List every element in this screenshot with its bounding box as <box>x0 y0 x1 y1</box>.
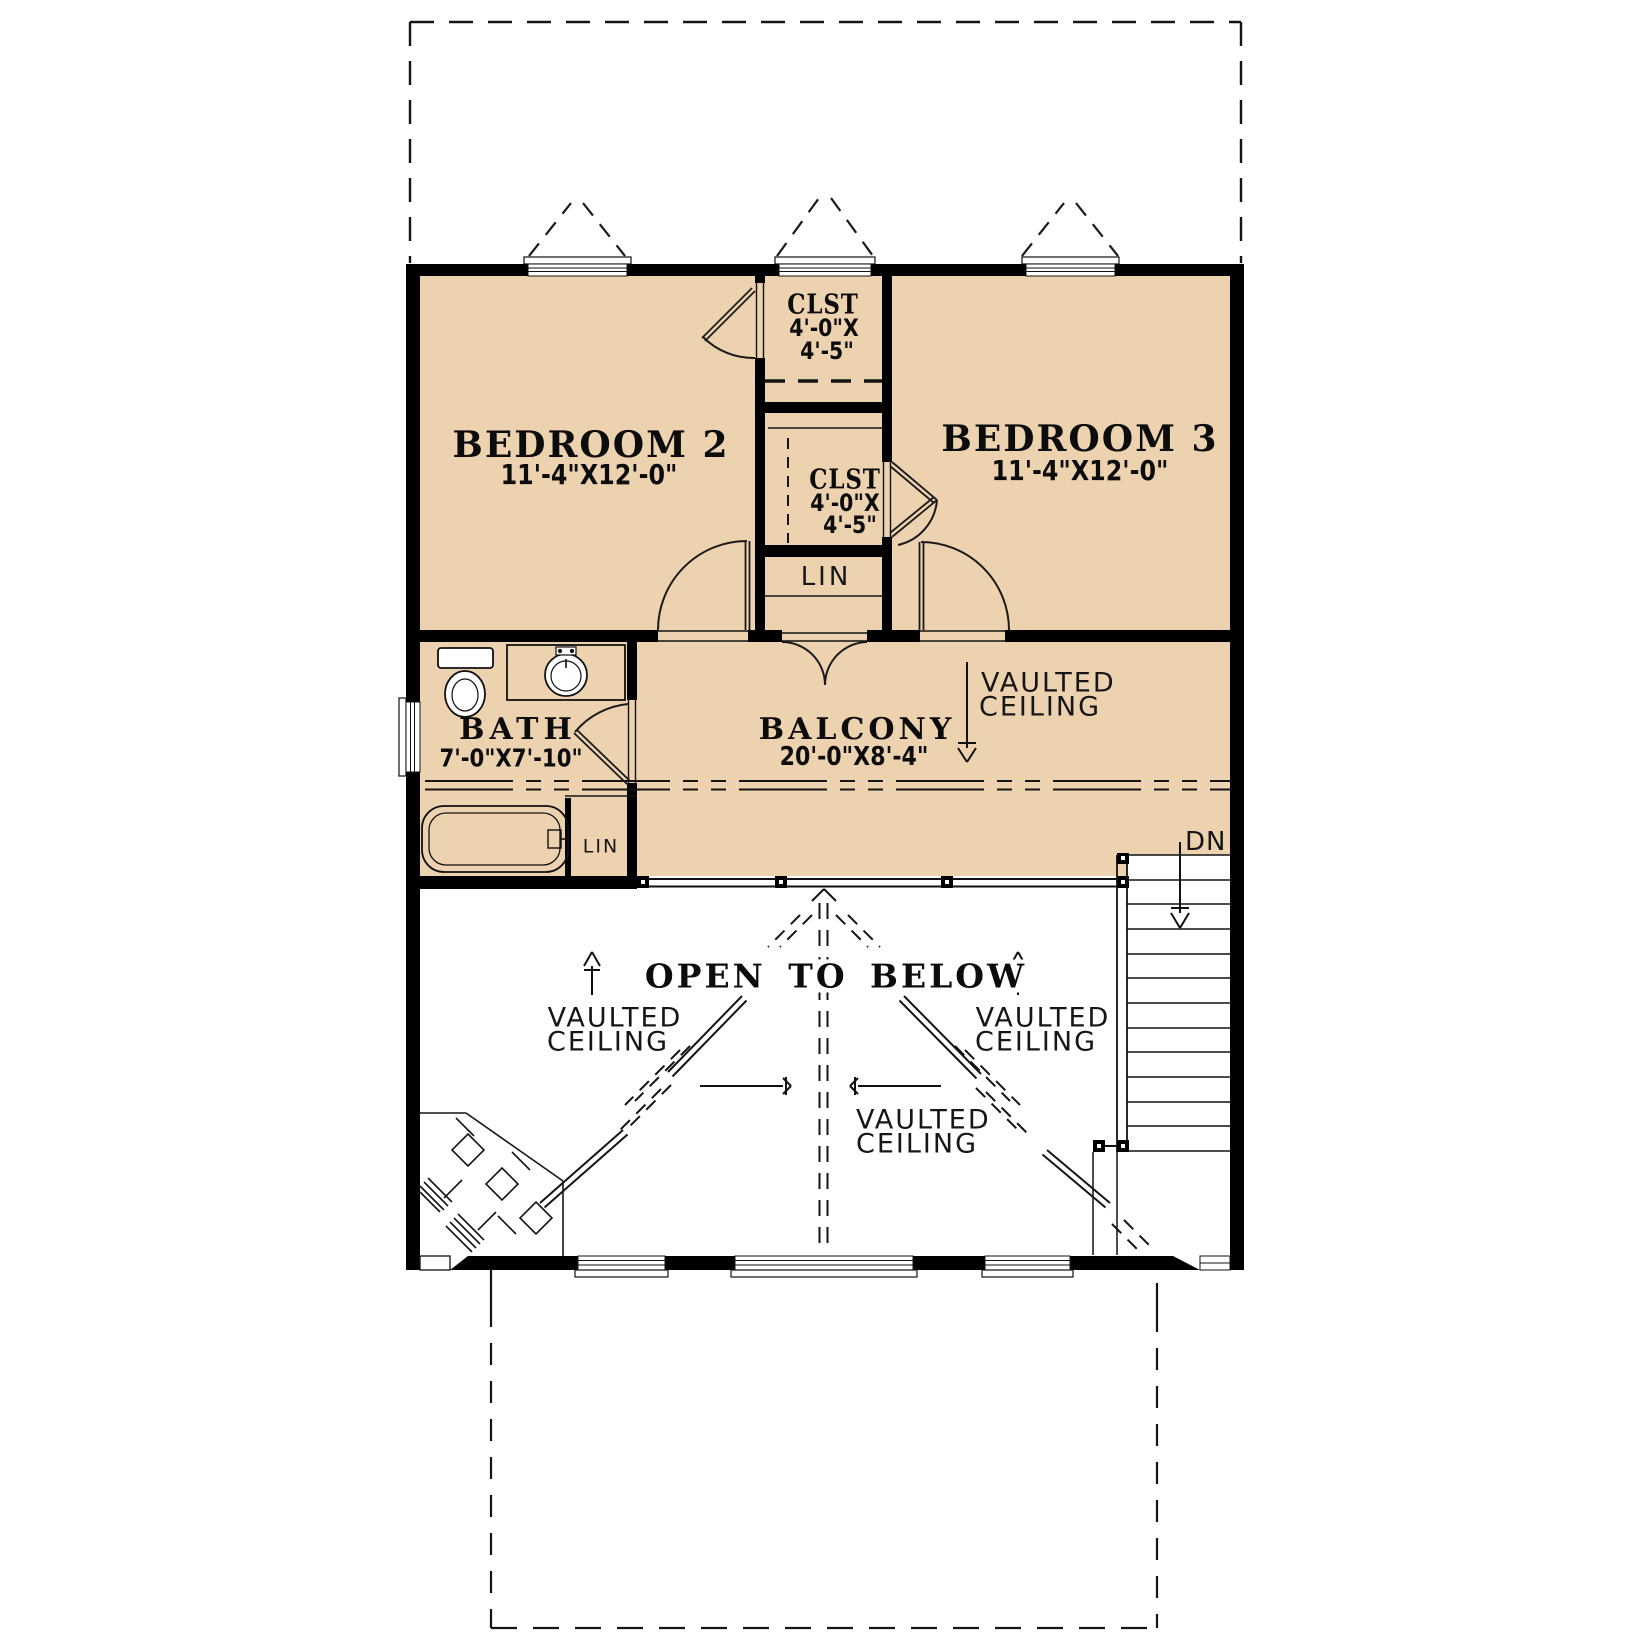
fireplace-detail <box>420 1113 563 1256</box>
top-windows <box>524 257 1119 276</box>
window-bottom-2 <box>731 1256 917 1277</box>
dormer-2 <box>777 198 873 256</box>
balcony-name: BALCONY <box>759 715 956 745</box>
window-bottom-corner <box>1200 1256 1230 1270</box>
vaulted-left-line2: CEILING <box>547 1029 669 1056</box>
deck-outline-dashed <box>491 1270 1157 1628</box>
vaulted-center-line2: CEILING <box>856 1131 978 1158</box>
balcony-railing <box>637 876 1129 888</box>
window-bedroom3-top <box>1022 257 1119 276</box>
floor-plan: BEDROOM 2 11'-4"X12'-0" BEDROOM 3 11'-4"… <box>0 0 1650 1650</box>
bedroom3-dims: 11'-4"X12'-0" <box>992 457 1169 485</box>
linen-bath-label: LIN <box>583 838 619 857</box>
dormer-outlines-dashed <box>529 198 1118 256</box>
vaulted-right-line2: CEILING <box>975 1029 1097 1056</box>
dormer-1 <box>529 203 625 256</box>
ridge-and-valley-lines <box>540 889 1154 1254</box>
window-closet-top <box>775 257 875 276</box>
vaulted-up-arrow-left-icon <box>584 952 600 995</box>
bath-name: BATH <box>459 715 577 745</box>
window-bedroom2-top <box>524 257 631 276</box>
window-bottom-3 <box>982 1256 1073 1277</box>
closet-top-dims-h: 4'-5" <box>800 339 854 363</box>
floor-plan-drawing <box>0 0 1650 1650</box>
balcony-dims: 20'-0"X8'-4" <box>780 744 929 770</box>
open-to-below-label: OPEN TO BELOW <box>640 960 1032 993</box>
down-label: DN <box>1185 829 1226 855</box>
bedroom2-dims: 11'-4"X12'-0" <box>501 461 678 489</box>
bedroom3-name: BEDROOM 3 <box>941 421 1218 457</box>
roof-outline-dashed <box>410 22 1241 263</box>
stair-treads <box>1127 855 1230 1151</box>
bath-dims: 7'-0"X7'-10" <box>439 746 582 771</box>
window-bottom-1 <box>575 1256 668 1277</box>
linen-hall-label: LIN <box>801 564 852 590</box>
closet-mid-dims-h: 4'-5" <box>823 513 877 537</box>
vaulted-balcony-line2: CEILING <box>979 694 1101 721</box>
dormer-3 <box>1022 203 1118 256</box>
staircase <box>1093 853 1230 1255</box>
window-bath-left <box>399 698 420 776</box>
